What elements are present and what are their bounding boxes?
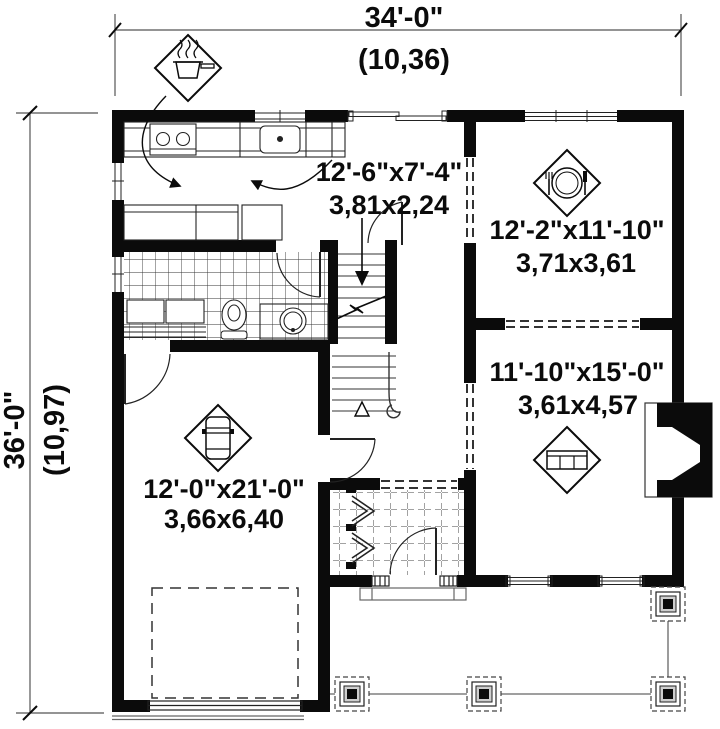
dim-top-imperial: 34'-0" (365, 2, 444, 34)
dryer (166, 300, 204, 323)
living-label-metric: 3,61x4,57 (518, 390, 638, 420)
kitchen-sink (260, 126, 300, 153)
toilet (221, 300, 247, 339)
dim-left-metric: (10,97) (39, 384, 71, 476)
dim-top-metric: (10,36) (358, 44, 450, 76)
stair-treads-lower (332, 356, 396, 411)
dim-left-imperial: 36'-0" (0, 391, 31, 470)
porch-columns (335, 587, 685, 711)
kitchen-label-imperial: 12'-6"x7'-4" (316, 157, 463, 187)
hall-garage-door (330, 439, 375, 482)
floor-plan-drawing: 34'-0" (10,36) 36'-0" (10,97) (0, 0, 720, 729)
garage-label-imperial: 12'-0"x21'-0" (143, 474, 305, 504)
front-step (360, 588, 466, 600)
stove (150, 124, 196, 155)
porch-column (467, 677, 501, 711)
dining-label-imperial: 12'-2"x11'-10" (489, 215, 664, 245)
porch-column (651, 587, 685, 621)
dining-label-metric: 3,71x3,61 (516, 248, 636, 278)
garage-entry-door (125, 354, 170, 404)
lower-cabinets (124, 205, 282, 240)
dining-plate-icon (534, 150, 600, 216)
kitchen-label-metric: 3,81x2,24 (329, 190, 449, 220)
floor-plan-canvas: 34'-0" (10,36) 36'-0" (10,97) (0, 0, 720, 729)
garage-label-metric: 3,66x6,40 (164, 504, 284, 534)
washer (127, 300, 164, 323)
stairs-up-arrow (355, 402, 369, 416)
garage-overhead-door (112, 588, 304, 720)
fireplace (645, 403, 712, 497)
living-label-imperial: 11'-10"x15'-0" (489, 357, 664, 387)
porch-column (651, 677, 685, 711)
cooking-pot-icon (155, 35, 221, 101)
stair-volute (387, 352, 400, 418)
car-icon (185, 405, 251, 471)
living-window-right (598, 576, 644, 586)
garage-door-dashed-zone (152, 588, 298, 698)
sofa-icon (534, 427, 600, 493)
living-window-left (506, 576, 552, 586)
porch-column (335, 677, 369, 711)
